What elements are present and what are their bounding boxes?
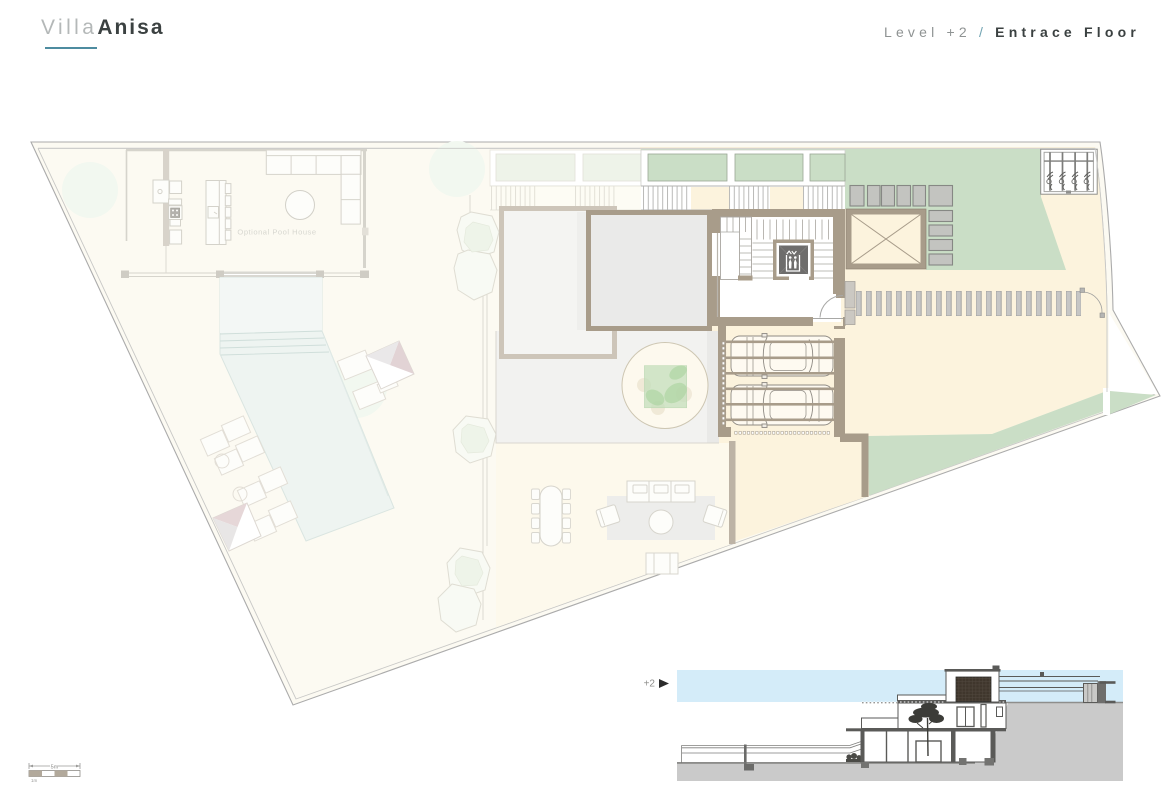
svg-text:1m: 1m xyxy=(31,778,38,783)
svg-text:+2: +2 xyxy=(644,679,656,690)
svg-text:VillaAnisa: VillaAnisa xyxy=(41,16,165,39)
svg-text:Level +2 / Entrace Floor: Level +2 / Entrace Floor xyxy=(884,24,1140,40)
svg-text:5m: 5m xyxy=(51,765,59,771)
svg-text:Optional Pool House: Optional Pool House xyxy=(237,228,316,237)
